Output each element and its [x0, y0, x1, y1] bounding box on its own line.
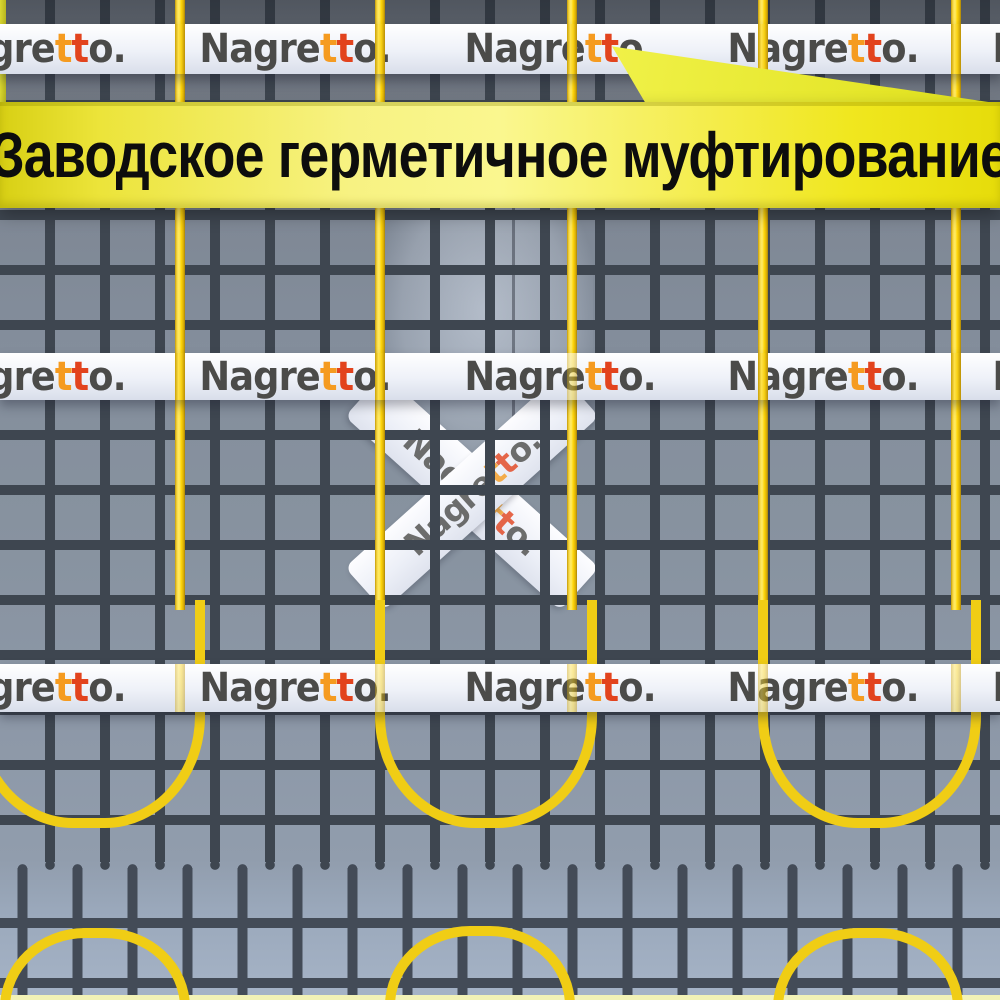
brand-t2: t — [337, 665, 354, 711]
brand-logo: Nagretto. — [992, 26, 1000, 72]
cable-under-tape — [951, 664, 961, 712]
brand-t2: t — [865, 26, 882, 72]
brand-logo: Nagretto. — [727, 354, 918, 400]
brand-logo: Nagretto. — [0, 665, 126, 711]
brand-suffix: o. — [618, 665, 655, 711]
brand-t2: t — [602, 665, 619, 711]
brand-prefix: Nagre — [0, 354, 55, 400]
brand-suffix: o. — [88, 665, 125, 711]
brand-logo: Nagretto. — [199, 665, 390, 711]
brand-suffix: o. — [88, 26, 125, 72]
cable-over-tape — [375, 353, 385, 400]
brand-prefix: Nagre — [199, 665, 319, 711]
promo-banner: Заводское герметичное муфтирование — [0, 102, 1000, 208]
cable-u-turn — [375, 600, 597, 828]
product-scene: Nagretto. Nagretto. Nagretto. Nagretto. … — [0, 0, 1000, 1000]
cable-under-tape — [567, 353, 577, 400]
brand-prefix: Nagre — [727, 354, 847, 400]
brand-t2: t — [337, 26, 354, 72]
brand-t1: t — [55, 354, 72, 400]
brand-prefix: Nagre — [992, 665, 1000, 711]
cable-over-tape — [758, 353, 768, 400]
brand-logo: Nagretto. — [464, 354, 655, 400]
cable-over-tape — [951, 24, 961, 74]
brand-t1: t — [55, 665, 72, 711]
brand-t1: t — [320, 354, 337, 400]
cable-over-tape — [175, 353, 185, 400]
brand-t2: t — [72, 354, 89, 400]
brand-t1: t — [585, 665, 602, 711]
brand-prefix: Nagre — [199, 26, 319, 72]
heating-cable — [175, 0, 185, 610]
brand-logo: Nagretto. — [0, 354, 126, 400]
brand-prefix: Nagre — [992, 26, 1000, 72]
brand-t1: t — [55, 26, 72, 72]
cable-over-tape — [758, 24, 768, 74]
brand-t2: t — [72, 26, 89, 72]
brand-suffix: o. — [353, 354, 390, 400]
brand-prefix: Nagre — [727, 665, 847, 711]
brand-prefix: Nagre — [199, 354, 319, 400]
cable-under-tape — [175, 664, 185, 712]
brand-logo: Nagretto. — [727, 665, 918, 711]
brand-suffix: o. — [881, 665, 918, 711]
heating-cable — [567, 0, 577, 610]
heating-cable — [951, 0, 961, 610]
brand-t1: t — [320, 665, 337, 711]
cable-u-turn — [0, 600, 205, 828]
brand-t1: t — [848, 26, 865, 72]
brand-suffix: o. — [881, 354, 918, 400]
brand-prefix: Nagre — [0, 665, 55, 711]
brand-suffix: o. — [353, 665, 390, 711]
cable-over-tape — [567, 24, 577, 74]
cable-under-tape — [375, 664, 385, 712]
brand-logo: Nagretto. — [727, 26, 918, 72]
brand-t2: t — [865, 354, 882, 400]
cable-over-tape — [375, 24, 385, 74]
brand-t1: t — [848, 665, 865, 711]
brand-t1: t — [585, 26, 602, 72]
brand-suffix: o. — [618, 354, 655, 400]
brand-t2: t — [865, 665, 882, 711]
cable-over-tape — [951, 353, 961, 400]
brand-logo: Nagretto. — [0, 26, 126, 72]
brand-prefix: Nagre — [727, 26, 847, 72]
brand-t1: t — [320, 26, 337, 72]
brand-logo: Nagretto. — [992, 665, 1000, 711]
brand-logo: Nagretto. — [992, 354, 1000, 400]
tape-band: Nagretto. Nagretto. Nagretto. Nagretto. … — [0, 353, 1000, 400]
brand-logo: Nagretto. — [464, 665, 655, 711]
heating-cable — [375, 0, 385, 610]
tape-band: Nagretto. Nagretto. Nagretto. Nagretto. … — [0, 664, 1000, 712]
brand-suffix: o. — [88, 354, 125, 400]
brand-t2: t — [602, 354, 619, 400]
tape-band: Nagretto. Nagretto. Nagretto. Nagretto. … — [0, 24, 1000, 74]
brand-t1: t — [848, 354, 865, 400]
mesh-fringe-bottom — [0, 822, 1000, 862]
brand-prefix: Nagre — [0, 26, 55, 72]
promo-banner-text: Заводское герметичное муфтирование — [0, 118, 1000, 192]
brand-suffix: o. — [881, 26, 918, 72]
brand-prefix: Nagre — [992, 354, 1000, 400]
brand-t2: t — [337, 354, 354, 400]
brand-logo: Nagretto. — [199, 354, 390, 400]
brand-t2: t — [72, 665, 89, 711]
cable-under-tape — [758, 664, 768, 712]
brand-suffix: o. — [353, 26, 390, 72]
brand-t1: t — [585, 354, 602, 400]
cable-over-tape — [175, 24, 185, 74]
brand-logo: Nagretto. — [199, 26, 390, 72]
cable-u-turn — [758, 600, 981, 828]
cable-under-tape — [567, 664, 577, 712]
